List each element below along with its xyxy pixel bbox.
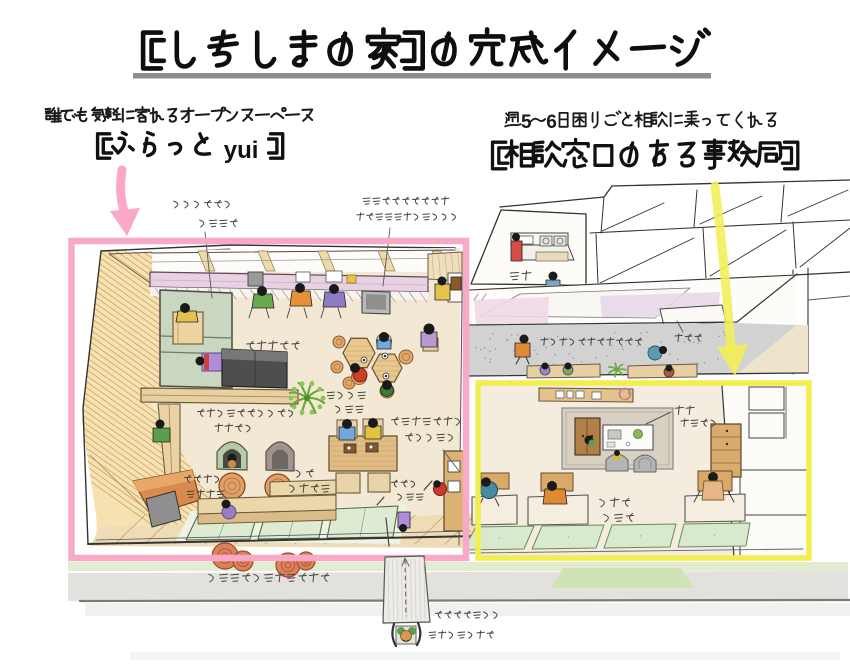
svg-text:5: 5: [521, 112, 532, 133]
svg-text:yui: yui: [224, 137, 259, 164]
svg-text:6: 6: [546, 112, 557, 133]
